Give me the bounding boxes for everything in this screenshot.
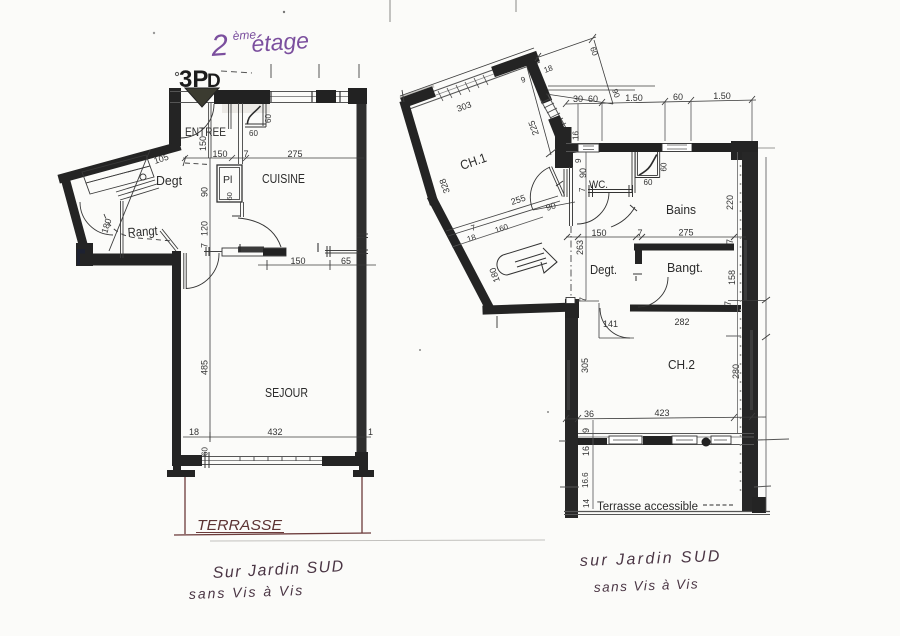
svg-text:120: 120 [200, 221, 210, 236]
svg-text:16: 16 [581, 446, 591, 456]
svg-text:7: 7 [200, 243, 210, 248]
svg-text:60: 60 [201, 447, 210, 456]
svg-text:16: 16 [572, 131, 581, 140]
svg-text:60: 60 [673, 92, 683, 102]
svg-text:CH.2: CH.2 [668, 357, 695, 372]
svg-text:282: 282 [674, 317, 689, 327]
svg-text:60: 60 [225, 192, 234, 200]
svg-text:150: 150 [212, 149, 227, 159]
svg-text:65: 65 [341, 256, 351, 266]
svg-text:150: 150 [290, 256, 305, 266]
svg-text:Bangt.: Bangt. [667, 260, 703, 275]
svg-text:275: 275 [678, 228, 693, 238]
svg-text:Degt.: Degt. [590, 262, 617, 277]
svg-text:7: 7 [725, 239, 735, 244]
svg-text:280: 280 [731, 364, 741, 379]
svg-text:9: 9 [574, 158, 583, 163]
svg-text:7: 7 [723, 301, 733, 306]
svg-text:220: 220 [725, 195, 735, 210]
svg-text:60: 60 [644, 178, 653, 187]
svg-text:263: 263 [575, 240, 585, 255]
svg-text:60: 60 [249, 129, 258, 138]
svg-text:60: 60 [264, 114, 273, 123]
svg-text:Pl: Pl [223, 174, 232, 186]
svg-text:14: 14 [582, 499, 591, 508]
svg-text:Degt: Degt [156, 173, 182, 188]
svg-text:423: 423 [654, 408, 669, 418]
svg-text:150: 150 [591, 228, 606, 238]
svg-text:TERRASSE: TERRASSE [197, 517, 283, 534]
svg-text:485: 485 [200, 360, 210, 375]
svg-text:150: 150 [198, 136, 208, 151]
svg-text:305: 305 [580, 358, 590, 373]
svg-text:7: 7 [243, 149, 248, 159]
svg-text:Rangt: Rangt [127, 223, 158, 240]
svg-text:30: 30 [573, 94, 583, 104]
svg-text:9: 9 [581, 428, 591, 433]
svg-text:1.50: 1.50 [713, 91, 731, 101]
svg-text:60: 60 [660, 162, 669, 171]
svg-text:90: 90 [578, 168, 588, 178]
svg-text:1: 1 [368, 427, 373, 437]
svg-text:WC.: WC. [589, 179, 608, 191]
svg-text:432: 432 [267, 427, 282, 437]
svg-text:Terrasse accessible: Terrasse accessible [597, 501, 698, 513]
svg-text:SEJOUR: SEJOUR [265, 385, 308, 400]
svg-text:18: 18 [189, 427, 199, 437]
svg-text:16.6: 16.6 [581, 472, 590, 488]
svg-text:7: 7 [578, 297, 588, 302]
svg-text:141: 141 [603, 319, 618, 329]
svg-text:158: 158 [727, 270, 737, 285]
svg-text:60: 60 [588, 94, 598, 104]
svg-text:7: 7 [578, 187, 587, 192]
svg-text:CUISINE: CUISINE [262, 171, 305, 186]
svg-text:275: 275 [287, 149, 302, 159]
svg-text:étage: étage [251, 27, 310, 57]
svg-text:1.50: 1.50 [625, 93, 643, 103]
svg-text:7: 7 [637, 228, 642, 238]
svg-text:2: 2 [209, 29, 229, 63]
svg-text:90: 90 [200, 187, 210, 197]
svg-text:36: 36 [584, 409, 594, 419]
svg-text:Bains: Bains [666, 202, 696, 217]
